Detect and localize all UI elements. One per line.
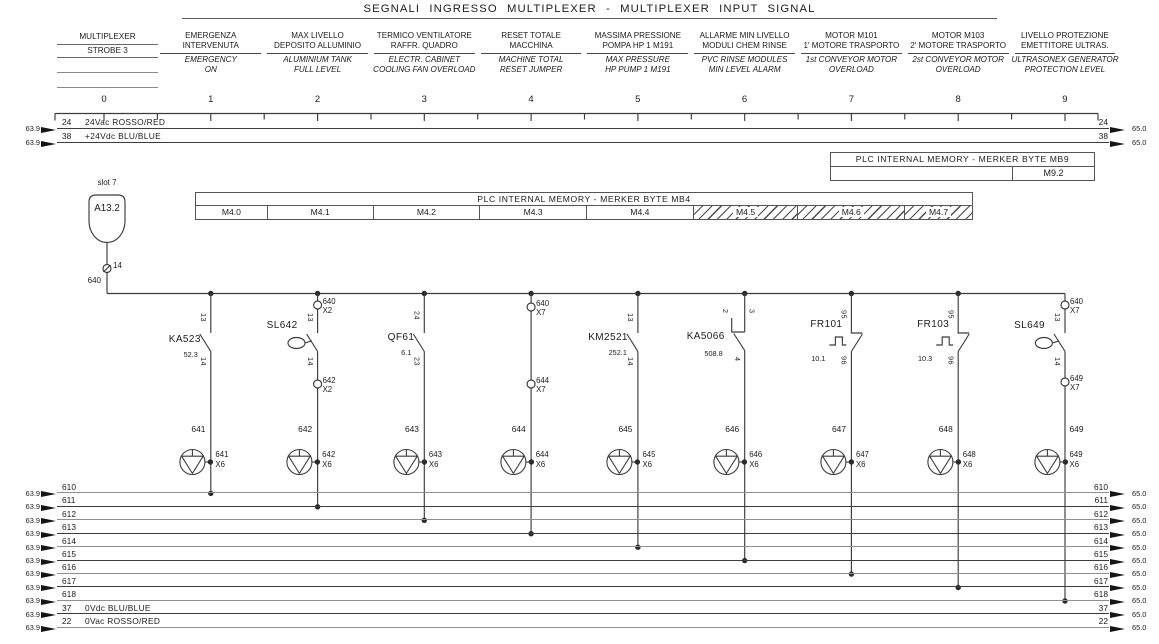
header-rule	[694, 53, 795, 54]
component-ref: 52.3	[138, 350, 198, 359]
channel-number: 0	[51, 94, 158, 105]
wire-name: +24Vdc BLU/BLUE	[85, 131, 161, 141]
terminal-number: 4	[733, 357, 742, 362]
terminal-number: 24	[413, 311, 422, 320]
component-name: KA523	[115, 334, 201, 345]
terminal-wire: 649	[1070, 374, 1083, 383]
wire-number: 640	[71, 276, 101, 285]
mux-empty-row	[57, 73, 158, 88]
component-name: KM2521	[542, 332, 628, 343]
output-socket-cell: 643 643 X6	[371, 415, 478, 480]
arrow-right-icon	[41, 626, 56, 632]
wire-number: 611	[1048, 495, 1108, 505]
component-name: QF61	[328, 332, 414, 343]
arrow-right-icon	[1110, 626, 1125, 632]
wire-line	[57, 627, 1109, 628]
wire-number: 618	[62, 589, 76, 599]
terminal-wire: 646	[749, 450, 762, 459]
signal-name-en: 2st CONVEYOR MOTOR	[905, 55, 1012, 65]
bus-640	[107, 291, 1065, 296]
channel-number: 5	[584, 94, 691, 105]
signal-name-it: MAX LIVELLO	[264, 31, 371, 41]
terminal-number: 95	[840, 310, 849, 319]
wire-line	[57, 142, 1109, 143]
component-ref: 10.3	[872, 354, 932, 363]
bottom-signal-rails: 63.9 610 610 65.0 63.9 611 611 65.0	[0, 480, 1159, 628]
terminal-wire: 640	[1070, 297, 1083, 306]
terminal-wire: 642	[323, 376, 336, 385]
channel-number: 1	[157, 94, 264, 105]
wire-number: 610	[62, 482, 76, 492]
signal-name-it: MODULI CHEM RINSE	[691, 41, 798, 51]
output-socket-cell: 645 645 X6	[584, 415, 691, 480]
arrow-right-icon	[1110, 141, 1125, 147]
terminal-block: X6	[856, 460, 866, 469]
output-socket-cell: 646 646 X6	[691, 415, 798, 480]
destination-ref: 65.0	[1132, 623, 1146, 632]
wire-number: 38	[62, 131, 71, 141]
terminal-wire: 649	[1070, 450, 1083, 459]
signal-name-it: RAFFR. QUADRO	[371, 41, 478, 51]
terminal-number: 13	[199, 313, 208, 322]
channel-number: 9	[1011, 94, 1118, 105]
wire-name: 0Vac ROSSO/RED	[85, 616, 160, 626]
signal-rail-row: 63.9 615 615 65.0	[0, 547, 1159, 560]
wire-number: 616	[1048, 562, 1108, 572]
terminal-wire: 644	[536, 450, 549, 459]
terminal-wire: 642	[322, 450, 335, 459]
signal-rail-row: 63.9 617 617 65.0	[0, 574, 1159, 587]
terminal-number: 23	[413, 357, 422, 366]
wire-number: 617	[1048, 576, 1108, 586]
mb4-bit-cell: M4.4	[587, 206, 694, 219]
wire-number: 613	[62, 522, 76, 532]
header-rule	[267, 53, 368, 54]
signal-rail-row: 63.9 616 616 65.0	[0, 561, 1159, 574]
wire-name: 0Vdc BLU/BLUE	[85, 603, 151, 613]
multiplexer-strobe-block: MULTIPLEXER STROBE 3	[57, 31, 158, 88]
channel-number: 2	[264, 94, 371, 105]
terminal-wire: 640	[536, 299, 549, 308]
terminal-wire: 643	[429, 450, 442, 459]
slot-label: slot 7	[82, 178, 132, 187]
signal-rail-row: 63.9 37 0Vdc BLU/BLUE 37 65.0	[0, 601, 1159, 614]
terminal-block: X7	[1070, 383, 1080, 392]
strobe-label: STROBE 3	[57, 45, 158, 59]
wire-number: 22	[62, 616, 71, 626]
signal-column-header: MOTOR M101 1' MOTORE TRASPORTO 1st CONVE…	[798, 31, 905, 75]
signal-rail-row: 63.9 613 613 65.0	[0, 520, 1159, 533]
wire-number: 22	[1048, 616, 1108, 626]
signal-name-en: ULTRASONEX GENERATOR	[1012, 55, 1119, 65]
output-socket-cell: 647 647 X6	[798, 415, 905, 480]
signal-name-en: ON	[157, 65, 264, 75]
header-rule	[908, 53, 1009, 54]
wire-number: 648	[919, 424, 953, 434]
wire-number: 613	[1048, 522, 1108, 532]
mb4-bit-cell-hatched: M4.7	[905, 206, 972, 219]
signal-name-en: PVC RINSE MODULES	[691, 55, 798, 65]
terminal-number: 14	[113, 261, 122, 270]
channel-number: 6	[691, 94, 798, 105]
terminal-number: 14	[306, 357, 315, 366]
component-name: SL642	[212, 320, 298, 331]
signal-name-it: LIVELLO PROTEZIONE	[1012, 31, 1119, 41]
arrow-right-icon	[41, 141, 56, 147]
mb4-bit-cell-hatched: M4.6	[798, 206, 905, 219]
component-ref: 252.1	[567, 348, 627, 357]
signal-name-it: 1' MOTORE TRASPORTO	[798, 41, 905, 51]
wire-number: 612	[1048, 509, 1108, 519]
signal-rail-row: 63.9 612 612 65.0	[0, 507, 1159, 520]
signal-column-header: ALLARME MIN LIVELLO MODULI CHEM RINSE PV…	[691, 31, 798, 75]
wire-number: 643	[385, 424, 419, 434]
signal-name-it: MOTOR M103	[905, 31, 1012, 41]
mb4-bit-cell: M4.1	[268, 206, 374, 219]
signal-name-en: HP PUMP 1 M191	[584, 65, 691, 75]
signal-name-en: MACHINE TOTAL	[478, 55, 585, 65]
signal-name-en: 1st CONVEYOR MOTOR	[798, 55, 905, 65]
signal-name-it: 2' MOTORE TRASPORTO	[905, 41, 1012, 51]
signal-column-header: MASSIMA PRESSIONE POMPA HP 1 M191 MAX PR…	[584, 31, 691, 75]
channel-number: 7	[798, 94, 905, 105]
header-rule	[374, 53, 475, 54]
channel-number: 3	[371, 94, 478, 105]
signal-name-it: MACCHINA	[478, 41, 585, 51]
wire-number: 641	[171, 424, 205, 434]
terminal-number: 13	[626, 313, 635, 322]
wire-number: 642	[278, 424, 312, 434]
wire-number: 37	[1048, 603, 1108, 613]
wire-number: 644	[492, 424, 526, 434]
wire-number: 24	[1048, 117, 1108, 127]
terminal-wire: 644	[536, 376, 549, 385]
merker-byte-mb9-table: PLC INTERNAL MEMORY - MERKER BYTE MB9 M9…	[830, 152, 1095, 181]
terminal-number: 96	[840, 356, 849, 365]
signal-name-en: ELECTR. CABINET	[371, 55, 478, 65]
mb9-header: PLC INTERNAL MEMORY - MERKER BYTE MB9	[830, 152, 1095, 167]
terminal-block: X6	[536, 460, 546, 469]
signal-name-it: EMERGENZA	[157, 31, 264, 41]
terminal-number: 14	[626, 357, 635, 366]
terminal-number: 2	[721, 309, 730, 314]
signal-column-header: MOTOR M103 2' MOTORE TRASPORTO 2st CONVE…	[905, 31, 1012, 75]
header-rule	[481, 53, 582, 54]
terminal-block: X6	[642, 460, 652, 469]
signal-name-en: RESET JUMPER	[478, 65, 585, 75]
signal-name-it: INTERVENUTA	[157, 41, 264, 51]
page-title: SEGNALI INGRESSO MULTIPLEXER - MULTIPLEX…	[182, 3, 997, 15]
signal-rail-row: 63.9 22 0Vac ROSSO/RED 22 65.0	[0, 614, 1159, 627]
signal-name-it: EMETTITORE ULTRAS.	[1012, 41, 1119, 51]
signal-name-it: TERMICO VENTILATORE	[371, 31, 478, 41]
signal-rail-row: 63.9 611 611 65.0	[0, 493, 1159, 506]
signal-column-header: MAX LIVELLO DEPOSITO ALLUMINIO ALUMINIUM…	[264, 31, 371, 75]
component-name: KA5066	[639, 331, 725, 342]
wire-number: 614	[1048, 536, 1108, 546]
wire-number: 612	[62, 509, 76, 519]
mb9-bit-cell: M9.2	[1013, 167, 1094, 180]
signal-column-header: EMERGENZA INTERVENUTA EMERGENCY ON	[157, 31, 264, 75]
strobe-channel-numbers: 0123456789	[51, 94, 1119, 105]
terminal-block: X6	[749, 460, 759, 469]
signal-name-en: COOLING FAN OVERLOAD	[371, 65, 478, 75]
wire-number: 645	[598, 424, 632, 434]
signal-name-it: MOTOR M101	[798, 31, 905, 41]
mb4-bit-cell: M4.3	[480, 206, 587, 219]
terminal-block: X7	[536, 308, 546, 317]
power-rail-row: 63.9 38 +24Vdc BLU/BLUE 38 65.0	[0, 129, 1159, 143]
terminal-block: X2	[323, 385, 333, 394]
wire-number: 646	[705, 424, 739, 434]
mux-label: MULTIPLEXER	[57, 31, 158, 45]
merker-byte-mb4-table: PLC INTERNAL MEMORY - MERKER BYTE MB4 M4…	[195, 192, 973, 220]
signal-name-en: ALUMINIUM TANK	[264, 55, 371, 65]
terminal-block: X6	[1070, 460, 1080, 469]
terminal-number: 13	[1053, 313, 1062, 322]
mb4-bit-cell: M4.0	[196, 206, 268, 219]
terminal-block: X6	[963, 460, 973, 469]
header-rule	[160, 53, 261, 54]
signal-rail-row: 63.9 618 618 65.0	[0, 587, 1159, 600]
mb4-bit-cell-hatched: M4.5	[694, 206, 799, 219]
component-name: SL649	[959, 320, 1045, 331]
terminal-wire: 641	[215, 450, 228, 459]
component-name: FR103	[863, 319, 949, 330]
terminal-block: X7	[536, 385, 546, 394]
terminal-block: X6	[322, 460, 332, 469]
wire-number: 617	[62, 576, 76, 586]
wire-number: 614	[62, 536, 76, 546]
terminal-block: X6	[429, 460, 439, 469]
source-ref: 63.9	[8, 623, 40, 632]
wire-number: 618	[1048, 589, 1108, 599]
wire-number: 24	[62, 117, 71, 127]
wire-number: 611	[62, 495, 75, 505]
terminal-number: 95	[946, 310, 955, 319]
header-rule	[587, 53, 688, 54]
terminal-wire: 647	[856, 450, 869, 459]
wire-name: 24Vac ROSSO/RED	[85, 117, 165, 127]
terminal-number: 14	[1053, 357, 1062, 366]
output-socket-cell: 648 648 X6	[905, 415, 1012, 480]
component-ref: 508.8	[663, 349, 723, 358]
wire-number: 615	[1048, 549, 1108, 559]
terminal-number: 3	[748, 309, 757, 314]
terminal-wire: 640	[323, 297, 336, 306]
signal-name-it: ALLARME MIN LIVELLO	[691, 31, 798, 41]
terminal-wire: 645	[642, 450, 655, 459]
signal-rail-row: 63.9 614 614 65.0	[0, 534, 1159, 547]
wire-number: 615	[62, 549, 76, 559]
output-socket-cell: 644 644 X6	[478, 415, 585, 480]
signal-column-headers: EMERGENZA INTERVENUTA EMERGENCY ON MAX L…	[157, 31, 1119, 75]
channel-number: 8	[905, 94, 1012, 105]
terminal-number: 13	[306, 313, 315, 322]
schematic-page: SEGNALI INGRESSO MULTIPLEXER - MULTIPLEX…	[0, 0, 1159, 644]
title-underline	[182, 18, 997, 19]
terminal-block: X6	[215, 460, 225, 469]
destination-ref: 65.0	[1132, 138, 1146, 147]
signal-name-it: MASSIMA PRESSIONE	[584, 31, 691, 41]
component-name: FR101	[756, 319, 842, 330]
header-rule	[1015, 53, 1116, 54]
signal-name-it: RESET TOTALE	[478, 31, 585, 41]
mb9-empty-cell	[831, 167, 1013, 180]
mux-empty-row	[57, 58, 158, 73]
component-ref: 10.1	[765, 354, 825, 363]
wire-number: 647	[812, 424, 846, 434]
signal-name-en: OVERLOAD	[905, 65, 1012, 75]
wire-number: 649	[1070, 424, 1104, 434]
signal-column-header: RESET TOTALE MACCHINA MACHINE TOTAL RESE…	[478, 31, 585, 75]
signal-column-header: LIVELLO PROTEZIONE EMETTITORE ULTRAS. UL…	[1012, 31, 1119, 75]
signal-name-en: EMERGENCY	[157, 55, 264, 65]
component-ref: 6.1	[351, 348, 411, 357]
signal-name-en: OVERLOAD	[798, 65, 905, 75]
wire-number: 37	[62, 603, 71, 613]
signal-name-en: MIN LEVEL ALARM	[691, 65, 798, 75]
wire-number: 616	[62, 562, 76, 572]
mb4-header: PLC INTERNAL MEMORY - MERKER BYTE MB4	[195, 192, 973, 206]
mb4-bit-cell: M4.2	[374, 206, 481, 219]
wire-number: 38	[1048, 131, 1108, 141]
signal-column-header: TERMICO VENTILATORE RAFFR. QUADRO ELECTR…	[371, 31, 478, 75]
output-socket-cell: 642 642 X6	[264, 415, 371, 480]
wire-number: 610	[1048, 482, 1108, 492]
channel-number: 4	[478, 94, 585, 105]
signal-name-en: PROTECTION LEVEL	[1012, 65, 1119, 75]
signal-name-it: DEPOSITO ALLUMINIO	[264, 41, 371, 51]
signal-name-it: POMPA HP 1 M191	[584, 41, 691, 51]
source-ref: 63.9	[8, 138, 40, 147]
signal-rail-row: 63.9 610 610 65.0	[0, 480, 1159, 493]
output-socket-cell: 641 641 X6	[157, 415, 264, 480]
terminal-block: X2	[323, 306, 333, 315]
signal-name-en: FULL LEVEL	[264, 65, 371, 75]
terminal-wire: 648	[963, 450, 976, 459]
output-socket-row: 641 641 X6 642 642 X6	[157, 415, 1119, 480]
power-rail-row: 63.9 24 24Vac ROSSO/RED 24 65.0	[0, 115, 1159, 129]
terminal-number: 96	[946, 356, 955, 365]
signal-name-en: MAX PRESSURE	[584, 55, 691, 65]
top-power-rails: 63.9 24 24Vac ROSSO/RED 24 65.0 63.9 38 …	[0, 115, 1159, 143]
terminal-block: X7	[1070, 306, 1080, 315]
plc-module-label: A13.2	[87, 203, 127, 214]
output-socket-cell: 649 649 X6	[1012, 415, 1119, 480]
terminal-number: 14	[199, 357, 208, 366]
header-rule	[801, 53, 902, 54]
